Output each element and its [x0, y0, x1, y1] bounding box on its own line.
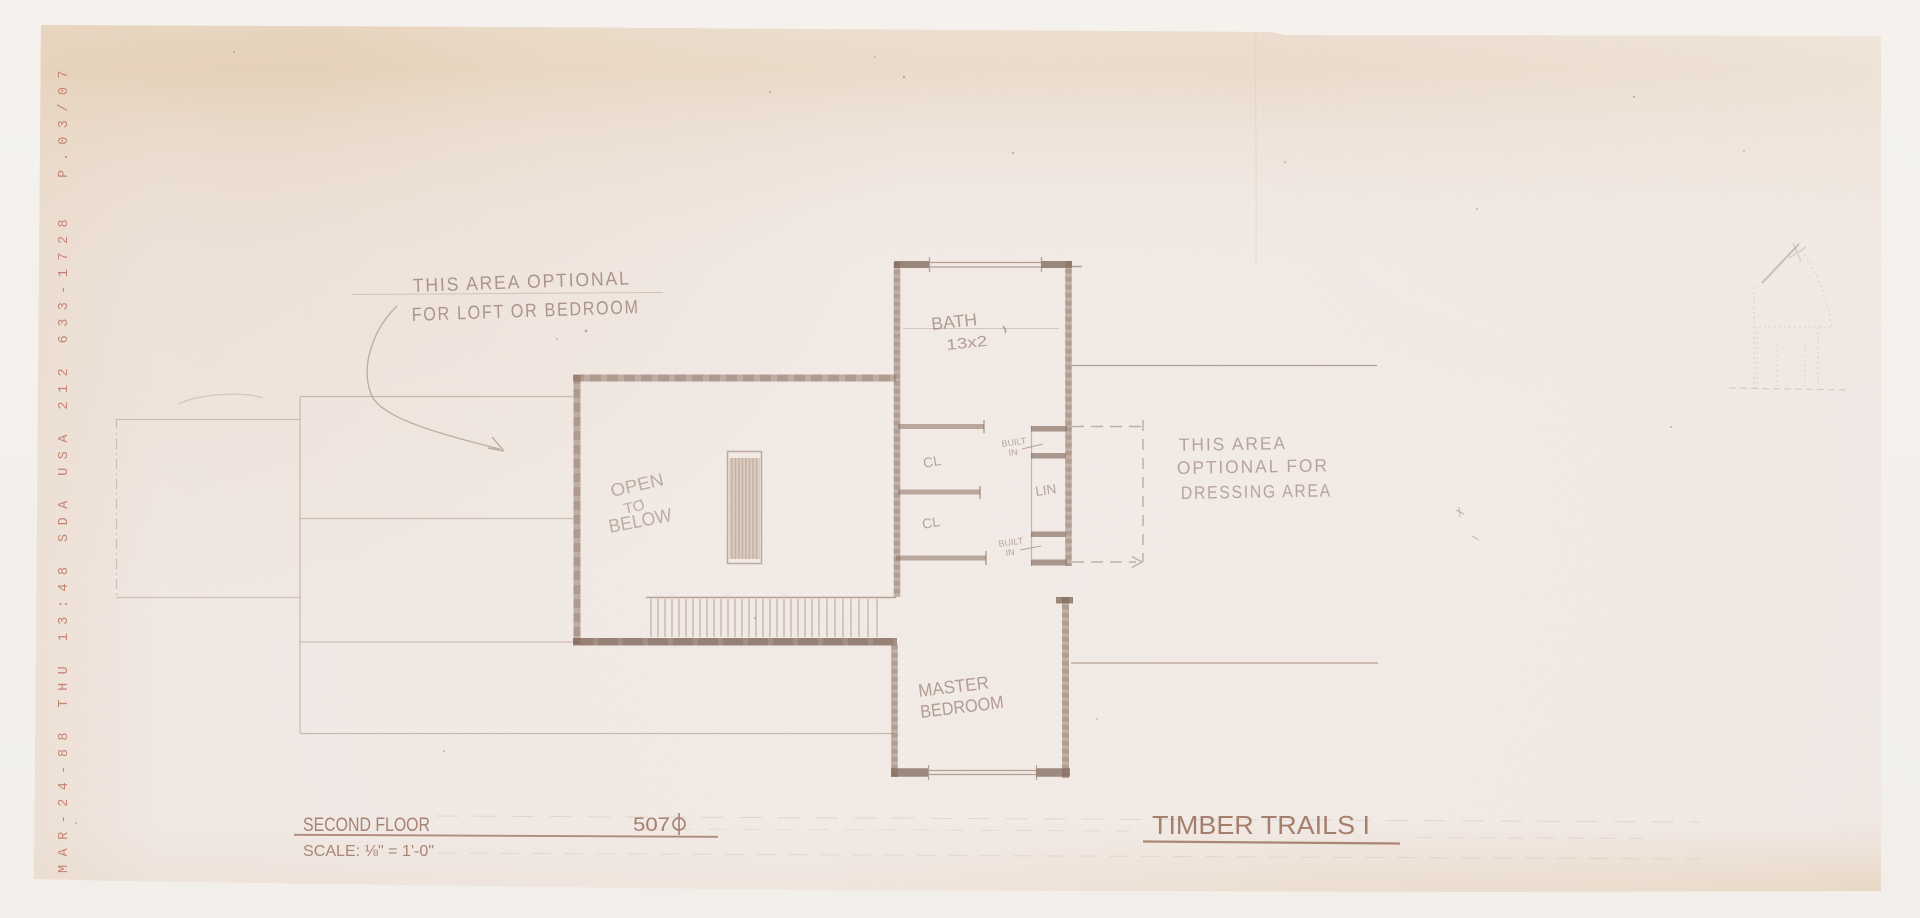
svg-text:OPTIONAL FOR: OPTIONAL FOR — [1177, 455, 1329, 478]
svg-text:SECOND FLOOR: SECOND FLOOR — [303, 815, 430, 836]
svg-text:LIN: LIN — [1034, 481, 1057, 499]
svg-text:DRESSING AREA: DRESSING AREA — [1181, 480, 1332, 503]
svg-text:SCALE: ⅛" = 1'-0": SCALE: ⅛" = 1'-0" — [303, 843, 434, 860]
svg-text:IN: IN — [1008, 447, 1018, 458]
svg-text:MAR-24-88 THU 13:48 SDA USA 21: MAR-24-88 THU 13:48 SDA USA 212 633-1728… — [57, 62, 72, 873]
svg-text:IN: IN — [1005, 547, 1015, 558]
svg-text:THIS AREA: THIS AREA — [1179, 433, 1287, 455]
svg-text:CL: CL — [922, 452, 943, 471]
svg-text:TIMBER TRAILS I: TIMBER TRAILS I — [1152, 810, 1370, 840]
svg-text:507: 507 — [633, 815, 670, 836]
svg-text:CL: CL — [921, 513, 942, 532]
